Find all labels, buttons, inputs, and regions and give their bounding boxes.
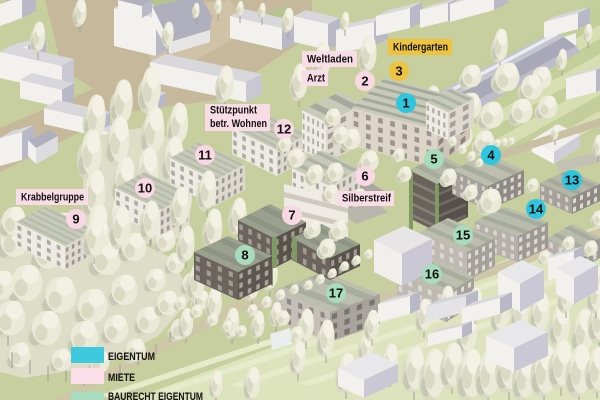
svg-text:Kindergarten: Kindergarten: [393, 42, 448, 54]
svg-text:6: 6: [361, 168, 368, 183]
svg-text:1: 1: [402, 95, 409, 110]
svg-text:17: 17: [329, 285, 343, 300]
svg-text:MIETE: MIETE: [108, 372, 135, 384]
svg-text:Stützpunkt: Stützpunkt: [210, 105, 257, 117]
svg-text:13: 13: [565, 172, 579, 187]
svg-text:7: 7: [288, 207, 295, 222]
svg-text:8: 8: [241, 247, 248, 262]
svg-text:Silberstreif: Silberstreif: [342, 193, 391, 205]
svg-text:5: 5: [430, 151, 437, 166]
svg-text:betr. Wohnen: betr. Wohnen: [210, 118, 267, 130]
svg-text:15: 15: [456, 227, 470, 242]
svg-text:EIGENTUM: EIGENTUM: [108, 351, 155, 363]
svg-text:Krabbelgruppe: Krabbelgruppe: [21, 192, 84, 204]
svg-text:3: 3: [395, 63, 402, 78]
svg-text:12: 12: [277, 121, 291, 136]
svg-text:16: 16: [425, 266, 439, 281]
svg-text:14: 14: [529, 201, 544, 216]
svg-text:2: 2: [361, 73, 368, 88]
svg-text:10: 10: [138, 180, 152, 195]
svg-text:4: 4: [487, 147, 495, 162]
svg-text:BAURECHT EIGENTUM: BAURECHT EIGENTUM: [108, 391, 203, 400]
svg-text:11: 11: [198, 147, 212, 162]
svg-text:9: 9: [72, 211, 79, 226]
svg-text:Weltladen: Weltladen: [307, 54, 353, 66]
svg-text:Arzt: Arzt: [307, 73, 325, 85]
